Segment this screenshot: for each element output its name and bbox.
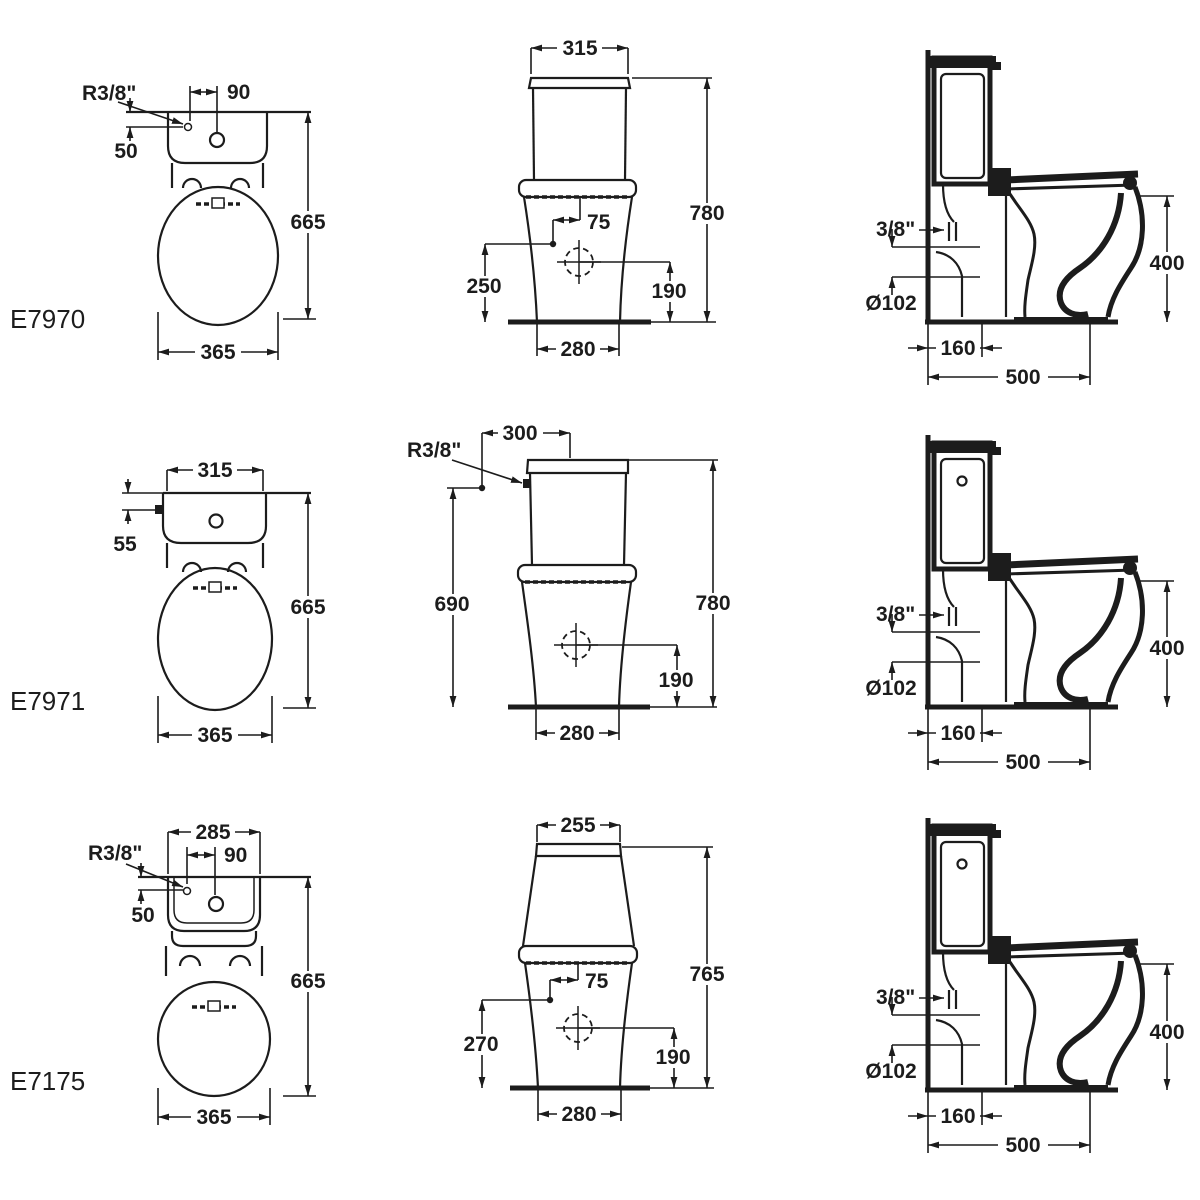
dim-supply-offset: 75	[587, 211, 611, 234]
dim-height: 665	[290, 596, 325, 619]
view-e7970-elevation: 315 780 75 250 190 280	[462, 37, 730, 361]
dim-supply-height: 270	[463, 1033, 498, 1056]
pedestal	[620, 197, 632, 322]
dim-inlet-radius: R3/8"	[88, 842, 142, 865]
cistern-lid	[527, 460, 628, 473]
cistern-lid	[536, 844, 621, 856]
dim-inlet-radius: R3/8"	[82, 82, 136, 105]
dim-total-height: 780	[689, 202, 724, 225]
cistern-lid	[529, 78, 630, 88]
dim-inlet: 3/8"	[876, 603, 915, 626]
pedestal	[620, 963, 632, 1088]
model-label: E7971	[10, 686, 85, 716]
seat-hinge	[230, 956, 250, 966]
flush-button	[209, 897, 223, 911]
dim-cistern-width: 285	[195, 821, 230, 844]
dim-outlet-diameter: Ø102	[865, 1060, 916, 1083]
dim-inlet-radius: R3/8"	[407, 439, 461, 462]
cistern-base-band	[172, 931, 256, 946]
dim-outlet-offset: 160	[940, 337, 975, 360]
cistern-inner-rim	[174, 877, 254, 923]
dim-total-height: 765	[689, 963, 724, 986]
dim-50: 50	[131, 904, 154, 927]
pedestal	[522, 582, 536, 707]
dim-bowl-height: 400	[1149, 637, 1184, 660]
dim-total-height: 780	[695, 592, 730, 615]
dim-cistern-width: 315	[197, 459, 232, 482]
model-label: E7970	[10, 304, 85, 334]
toilet-dimension-diagram: E7970 90 R3/8" 50 665 365 315 780 75	[0, 0, 1200, 1200]
dim-supply-offset: 75	[585, 970, 609, 993]
dim-height: 665	[290, 211, 325, 234]
dim-supply-height: 250	[466, 275, 501, 298]
view-e7175-side: 3/8" Ø102 400 160 500	[865, 818, 1190, 1157]
pedestal	[525, 963, 538, 1088]
dim-supply-offset: 300	[502, 422, 537, 445]
dim-50: 50	[114, 140, 137, 163]
dim-width: 365	[197, 724, 232, 747]
dim-bowl-height: 400	[1149, 1021, 1184, 1044]
dim-outlet-height: 190	[651, 280, 686, 303]
dim-outlet-diameter: Ø102	[865, 292, 916, 315]
dim-depth: 500	[1005, 366, 1040, 389]
inlet-hole	[184, 888, 191, 895]
supply-point	[479, 485, 485, 491]
side-inlet-tap	[523, 479, 531, 488]
dim-cistern-width: 255	[560, 814, 595, 837]
view-e7970-side: 3/8" Ø102 400 160 500	[865, 50, 1190, 389]
dim-supply-height: 690	[434, 593, 469, 616]
dim-base-width: 280	[560, 338, 595, 361]
view-e7175-front: E7175 285 90 R3/8" 50 665 365	[10, 821, 330, 1129]
dim-outlet-height: 190	[655, 1046, 690, 1069]
dim-inlet: 3/8"	[876, 218, 915, 241]
dim-90: 90	[224, 844, 247, 867]
dim-base-width: 280	[559, 722, 594, 745]
seat-hinge	[231, 179, 249, 188]
seat-platform	[519, 180, 636, 197]
pedestal	[524, 197, 537, 322]
seat-platform	[519, 946, 637, 963]
dim-90: 90	[227, 81, 250, 104]
view-e7971-front: E7971 315 55 665 365	[10, 459, 330, 747]
seat-oval	[158, 982, 270, 1096]
view-e7970-front: E7970 90 R3/8" 50 665 365	[10, 81, 330, 364]
view-e7971-side: 3/8" Ø102 400 160 500	[865, 435, 1190, 774]
dim-outlet-offset: 160	[940, 1105, 975, 1128]
inlet-hole	[185, 124, 192, 131]
dim-width: 365	[196, 1106, 231, 1129]
side-inlet-tap	[155, 505, 164, 514]
dim-depth: 500	[1005, 751, 1040, 774]
technical-drawing-sheet: E7970 90 R3/8" 50 665 365 315 780 75	[0, 0, 1200, 1200]
dim-cistern-width: 315	[562, 37, 597, 60]
dim-base-width: 280	[561, 1103, 596, 1126]
dim-outlet-height: 190	[658, 669, 693, 692]
dim-55: 55	[113, 533, 137, 556]
cistern-outline	[163, 493, 266, 543]
flush-button	[210, 515, 223, 528]
dim-outlet-offset: 160	[940, 722, 975, 745]
dim-inlet: 3/8"	[876, 986, 915, 1009]
dim-bowl-height: 400	[1149, 252, 1184, 275]
dim-depth: 500	[1005, 1134, 1040, 1157]
dim-outlet-diameter: Ø102	[865, 677, 916, 700]
dim-width: 365	[200, 341, 235, 364]
seat-hinge	[180, 956, 200, 966]
dim-height: 665	[290, 970, 325, 993]
seat-hinge	[183, 179, 201, 188]
model-label: E7175	[10, 1066, 85, 1096]
view-e7971-elevation: 300 R3/8" 690 780 190 280	[407, 422, 736, 745]
seat-platform	[518, 565, 636, 582]
view-e7175-elevation: 255 765 75 270 190 280	[460, 814, 730, 1126]
flush-button	[210, 133, 224, 147]
